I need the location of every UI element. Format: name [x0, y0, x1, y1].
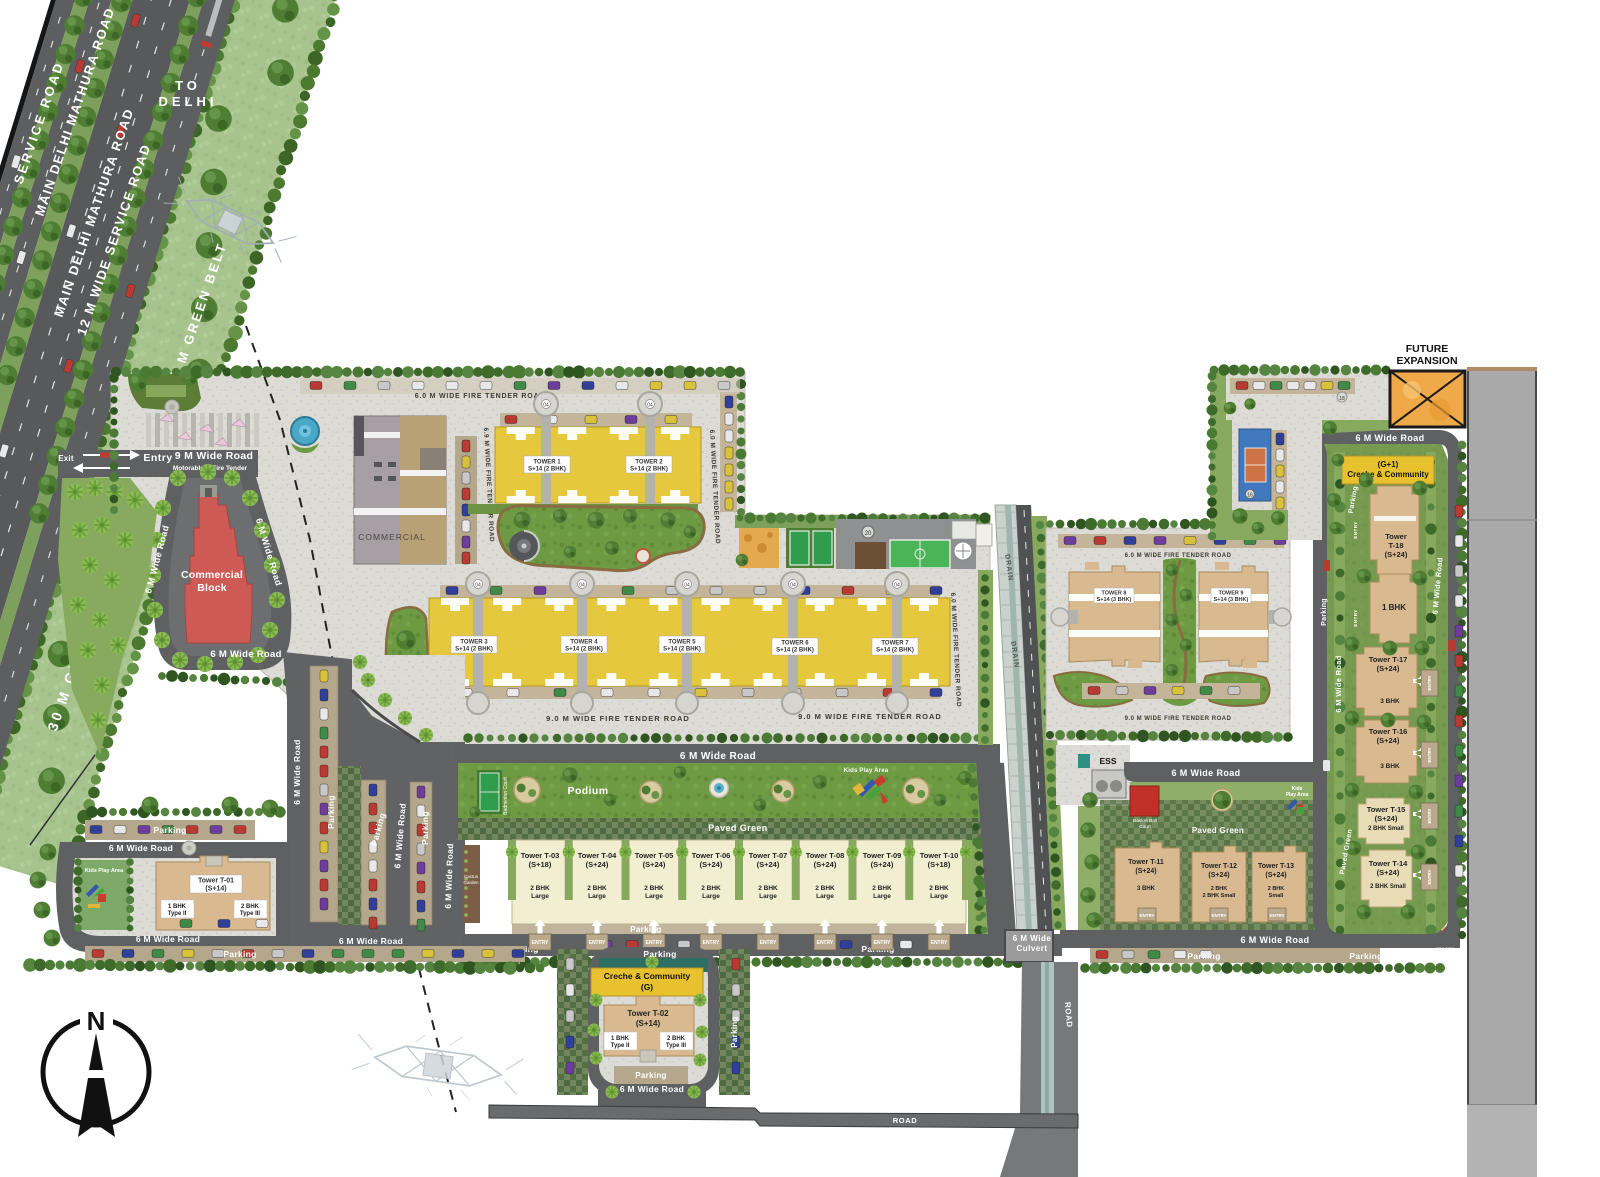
- svg-text:Parking: Parking: [1187, 951, 1220, 961]
- svg-text:Tower T-08: Tower T-08: [806, 851, 845, 860]
- svg-text:ENTRY: ENTRY: [760, 940, 777, 946]
- svg-text:T-18: T-18: [1388, 541, 1403, 550]
- svg-text:Large: Large: [759, 893, 777, 900]
- svg-text:Basket Ball: Basket Ball: [1133, 818, 1157, 824]
- svg-text:Exit: Exit: [58, 454, 74, 463]
- svg-text:Play Area: Play Area: [1286, 792, 1309, 798]
- svg-text:ENTRY: ENTRY: [1427, 808, 1432, 823]
- svg-text:6 M Wide Road: 6 M Wide Road: [1171, 768, 1240, 778]
- svg-text:EXPANSION: EXPANSION: [1396, 355, 1457, 367]
- svg-text:COMMERCIAL: COMMERCIAL: [358, 532, 426, 542]
- svg-text:6 M Wide Road: 6 M Wide Road: [210, 649, 281, 660]
- svg-text:S+14 (2 BHK): S+14 (2 BHK): [630, 467, 668, 473]
- svg-text:ENTRY: ENTRY: [589, 940, 606, 946]
- svg-text:ENTRY: ENTRY: [874, 940, 891, 946]
- svg-text:TOWER 2: TOWER 2: [635, 460, 663, 466]
- svg-text:2 BHK: 2 BHK: [667, 1036, 686, 1042]
- svg-text:Garden: Garden: [463, 880, 479, 885]
- svg-text:TOWER 9: TOWER 9: [1219, 591, 1244, 597]
- svg-text:Large: Large: [816, 893, 834, 900]
- svg-text:TOWER 4: TOWER 4: [570, 640, 598, 646]
- svg-text:3 BHK: 3 BHK: [1380, 763, 1400, 770]
- svg-text:TOWER 8: TOWER 8: [1102, 591, 1127, 597]
- svg-text:TOWER 5: TOWER 5: [668, 640, 696, 646]
- svg-text:ENTRY: ENTRY: [1211, 913, 1226, 918]
- svg-text:16: 16: [1247, 493, 1253, 499]
- svg-text:ENTRY: ENTRY: [703, 940, 720, 946]
- svg-text:2 BHK: 2 BHK: [1211, 886, 1228, 892]
- svg-text:S+14 (3 BHK): S+14 (3 BHK): [1214, 597, 1249, 603]
- svg-text:Tower T-14: Tower T-14: [1369, 859, 1408, 868]
- svg-text:2 BHK: 2 BHK: [815, 885, 835, 892]
- svg-text:(S+24): (S+24): [1377, 868, 1400, 877]
- svg-text:6 M Wide Road: 6 M Wide Road: [1240, 935, 1309, 945]
- svg-text:6 M Wide Road: 6 M Wide Road: [339, 936, 403, 946]
- svg-text:Parking: Parking: [630, 925, 661, 934]
- svg-text:Tower T-15: Tower T-15: [1367, 805, 1406, 814]
- svg-text:04: 04: [647, 403, 653, 409]
- svg-text:Large: Large: [588, 893, 606, 900]
- svg-text:04: 04: [894, 583, 900, 589]
- svg-text:ENTRY: ENTRY: [1139, 913, 1154, 918]
- svg-text:TOWER 7: TOWER 7: [881, 641, 909, 647]
- svg-text:Tower T-13: Tower T-13: [1258, 863, 1294, 870]
- svg-text:ENTRY: ENTRY: [1427, 747, 1432, 762]
- svg-text:(S+24): (S+24): [586, 860, 609, 869]
- svg-text:Tower T-05: Tower T-05: [635, 851, 674, 860]
- svg-text:6 M Wide Road: 6 M Wide Road: [109, 843, 173, 853]
- svg-text:(S+18): (S+18): [928, 860, 951, 869]
- svg-text:ROAD: ROAD: [893, 1116, 917, 1125]
- svg-text:S+14 (2 BHK): S+14 (2 BHK): [565, 647, 603, 653]
- svg-text:Small: Small: [1269, 893, 1284, 899]
- svg-text:6 M Wide Road: 6 M Wide Road: [136, 934, 200, 944]
- svg-text:6 M Wide Road: 6 M Wide Road: [292, 739, 302, 805]
- svg-text:9.0 M WIDE FIRE TENDER ROAD: 9.0 M WIDE FIRE TENDER ROAD: [546, 714, 690, 723]
- svg-text:(S+24): (S+24): [1377, 736, 1400, 745]
- svg-text:2 BHK Small: 2 BHK Small: [1370, 884, 1406, 890]
- svg-text:2 BHK: 2 BHK: [644, 885, 664, 892]
- svg-text:3 BHK: 3 BHK: [1137, 886, 1156, 892]
- svg-text:N: N: [87, 1006, 106, 1036]
- svg-text:6 M Wide Road: 6 M Wide Road: [620, 1084, 684, 1094]
- svg-text:S+14 (2 BHK): S+14 (2 BHK): [528, 467, 566, 473]
- svg-text:2 BHK: 2 BHK: [929, 885, 949, 892]
- svg-text:1 BHK: 1 BHK: [1382, 603, 1406, 612]
- svg-text:S+14 (2 BHK): S+14 (2 BHK): [663, 647, 701, 653]
- svg-text:Tower T-02: Tower T-02: [627, 1009, 669, 1018]
- svg-text:FUTURE: FUTURE: [1406, 343, 1449, 355]
- svg-text:Cactus: Cactus: [464, 874, 479, 879]
- svg-text:Entry: Entry: [143, 452, 172, 464]
- svg-text:04: 04: [684, 583, 690, 589]
- svg-text:ENTRY: ENTRY: [817, 940, 834, 946]
- svg-text:1 BHK: 1 BHK: [611, 1036, 630, 1042]
- svg-text:04: 04: [790, 583, 796, 589]
- svg-text:S+14 (2 BHK): S+14 (2 BHK): [876, 648, 914, 654]
- svg-text:Parking: Parking: [223, 949, 256, 959]
- svg-text:2 BHK: 2 BHK: [872, 885, 892, 892]
- svg-text:ESS: ESS: [1099, 756, 1116, 766]
- svg-text:TOWER 3: TOWER 3: [460, 640, 488, 646]
- svg-text:(S+24): (S+24): [1135, 868, 1156, 875]
- svg-text:Large: Large: [645, 893, 663, 900]
- svg-text:Culvert: Culvert: [1016, 944, 1047, 953]
- svg-text:Parking: Parking: [643, 949, 676, 959]
- svg-text:2 BHK Small: 2 BHK Small: [1368, 826, 1404, 832]
- svg-text:(S+24): (S+24): [700, 860, 723, 869]
- svg-text:ENTRY: ENTRY: [1427, 869, 1432, 884]
- svg-text:9.0 M WIDE FIRE TENDER ROAD: 9.0 M WIDE FIRE TENDER ROAD: [1125, 716, 1232, 722]
- svg-text:DELHI: DELHI: [159, 94, 218, 109]
- svg-text:ENTRY: ENTRY: [646, 940, 663, 946]
- svg-text:9.0 M WIDE FIRE TENDER ROAD: 9.0 M WIDE FIRE TENDER ROAD: [798, 712, 942, 721]
- svg-text:Type III: Type III: [666, 1043, 687, 1049]
- svg-text:04: 04: [579, 583, 585, 589]
- svg-text:ENTRY: ENTRY: [1269, 913, 1284, 918]
- svg-text:ENTRY: ENTRY: [1427, 675, 1432, 690]
- svg-text:(S+14): (S+14): [636, 1019, 661, 1028]
- svg-text:(G+1): (G+1): [1378, 460, 1399, 469]
- svg-text:Tower T-17: Tower T-17: [1369, 655, 1408, 664]
- svg-text:2 BHK: 2 BHK: [241, 904, 260, 910]
- svg-text:3 BHK: 3 BHK: [1380, 698, 1400, 705]
- svg-text:Parking: Parking: [420, 811, 430, 845]
- svg-text:(S+24): (S+24): [643, 860, 666, 869]
- svg-text:Type II: Type II: [168, 911, 187, 917]
- svg-text:2 BHK: 2 BHK: [587, 885, 607, 892]
- svg-text:ENTRY: ENTRY: [532, 940, 549, 946]
- svg-text:(S+24): (S+24): [1385, 550, 1408, 559]
- svg-text:Parking: Parking: [326, 795, 336, 829]
- svg-text:(S+24): (S+24): [1377, 664, 1400, 673]
- svg-text:2 BHK: 2 BHK: [530, 885, 550, 892]
- svg-text:9 M Wide Road: 9 M Wide Road: [175, 450, 253, 462]
- svg-text:Large: Large: [873, 893, 891, 900]
- svg-text:Parking: Parking: [1349, 951, 1382, 961]
- svg-text:ENTRY: ENTRY: [1353, 609, 1358, 627]
- svg-text:TOWER 1: TOWER 1: [533, 460, 561, 466]
- svg-text:2 BHK: 2 BHK: [701, 885, 721, 892]
- svg-text:Creche & Community: Creche & Community: [604, 971, 691, 981]
- svg-text:Block: Block: [197, 582, 227, 594]
- svg-text:ENTRY: ENTRY: [1353, 521, 1358, 539]
- svg-text:Tower T-01: Tower T-01: [198, 878, 234, 885]
- svg-text:Tower T-16: Tower T-16: [1369, 727, 1408, 736]
- svg-text:Kids Play Area: Kids Play Area: [844, 768, 889, 774]
- svg-text:Tower T-06: Tower T-06: [692, 851, 731, 860]
- svg-text:TO: TO: [175, 78, 201, 93]
- svg-text:6 M Wide Road: 6 M Wide Road: [1355, 433, 1424, 443]
- svg-text:Paved Green: Paved Green: [708, 823, 767, 833]
- svg-text:(S+24): (S+24): [1208, 872, 1229, 879]
- svg-text:04: 04: [543, 403, 549, 409]
- svg-text:Tower T-04: Tower T-04: [578, 851, 617, 860]
- svg-text:(S+24): (S+24): [871, 860, 894, 869]
- svg-text:Commercial: Commercial: [181, 569, 243, 581]
- svg-text:1 BHK: 1 BHK: [168, 904, 187, 910]
- svg-text:Tower: Tower: [1385, 532, 1407, 541]
- svg-text:Tower T-03: Tower T-03: [521, 851, 560, 860]
- svg-text:Tower T-10: Tower T-10: [920, 851, 959, 860]
- svg-text:(S+24): (S+24): [757, 860, 780, 869]
- svg-text:(S+24): (S+24): [1375, 814, 1398, 823]
- svg-text:Tower T-12: Tower T-12: [1201, 863, 1237, 870]
- svg-text:Badminton Court: Badminton Court: [503, 777, 509, 815]
- svg-text:S+14 (2 BHK): S+14 (2 BHK): [455, 647, 493, 653]
- svg-text:6 M Wide Road: 6 M Wide Road: [1334, 655, 1343, 712]
- svg-text:S+14 (2 BHK): S+14 (2 BHK): [776, 648, 814, 654]
- svg-text:(S+24): (S+24): [814, 860, 837, 869]
- svg-text:6.0 M WIDE FIRE TENDER ROAD: 6.0 M WIDE FIRE TENDER ROAD: [415, 393, 546, 400]
- svg-text:S+14 (3 BHK): S+14 (3 BHK): [1097, 597, 1132, 603]
- svg-text:Court: Court: [1139, 824, 1151, 830]
- svg-text:6 M Wide Road: 6 M Wide Road: [680, 751, 756, 762]
- svg-text:2 BHK: 2 BHK: [758, 885, 778, 892]
- svg-text:Kids Play Area: Kids Play Area: [85, 868, 124, 874]
- svg-text:Podium: Podium: [568, 785, 609, 797]
- svg-text:04: 04: [475, 583, 481, 589]
- svg-text:Type III: Type III: [240, 911, 261, 917]
- svg-text:Parking: Parking: [730, 1016, 739, 1047]
- svg-text:Tower T-07: Tower T-07: [749, 851, 788, 860]
- svg-text:Tower T-09: Tower T-09: [863, 851, 902, 860]
- svg-text:Parking: Parking: [635, 1071, 666, 1080]
- svg-text:Parking: Parking: [153, 825, 186, 835]
- svg-text:(S+14): (S+14): [205, 886, 226, 893]
- svg-text:Large: Large: [531, 893, 549, 900]
- svg-text:Large: Large: [930, 893, 948, 900]
- svg-text:ENTRY: ENTRY: [931, 940, 948, 946]
- svg-text:(S+18): (S+18): [529, 860, 552, 869]
- svg-text:18: 18: [1339, 396, 1345, 402]
- svg-text:Large: Large: [702, 893, 720, 900]
- svg-text:Tower T-11: Tower T-11: [1128, 859, 1164, 866]
- svg-text:Type II: Type II: [611, 1043, 630, 1049]
- svg-text:2 BHK Small: 2 BHK Small: [1203, 893, 1236, 899]
- svg-text:Parking: Parking: [1321, 598, 1328, 626]
- svg-text:(G): (G): [641, 982, 653, 992]
- svg-text:TOWER 6: TOWER 6: [781, 641, 809, 647]
- svg-text:(S+24): (S+24): [1265, 872, 1286, 879]
- svg-text:6 M Wide: 6 M Wide: [1013, 934, 1052, 943]
- svg-text:20: 20: [865, 531, 872, 537]
- svg-text:Paved Green: Paved Green: [1192, 826, 1244, 835]
- svg-text:2 BHK: 2 BHK: [1268, 886, 1285, 892]
